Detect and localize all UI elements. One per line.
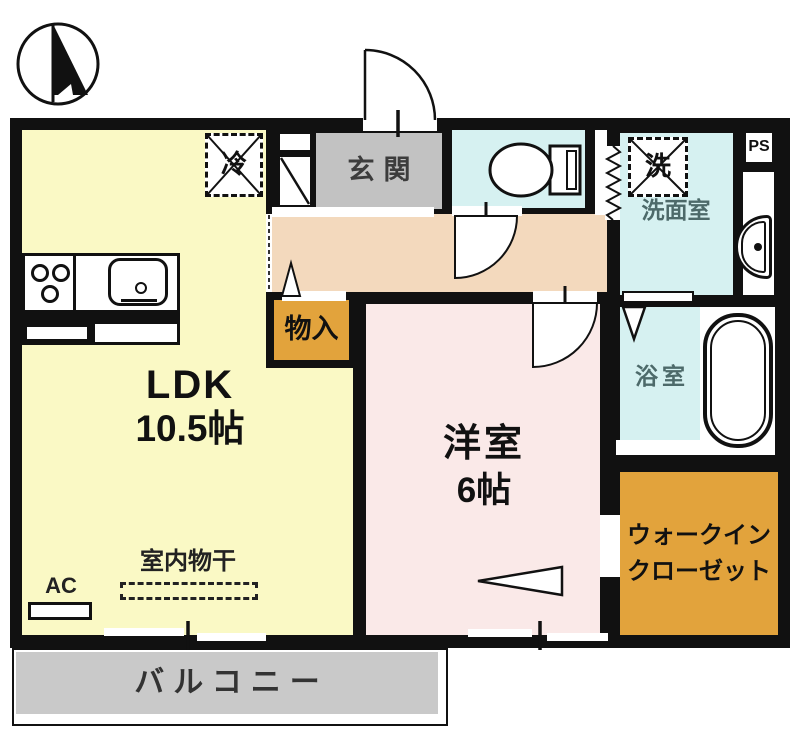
sink-drain <box>135 282 147 294</box>
storage-sliding-door <box>282 291 346 301</box>
kitchen-sink-icon <box>108 258 168 306</box>
kitchen-cabinet-slot <box>27 327 87 339</box>
wic-label-line2: クローゼット <box>627 558 771 586</box>
room-toilet <box>452 130 585 208</box>
corridor-open-boundary <box>266 214 272 292</box>
bathroom-label-text: 浴室 <box>631 363 689 389</box>
indoor-drying-label: 室内物干 <box>113 548 263 576</box>
window <box>197 633 266 641</box>
kitchen-cabinet-right <box>92 321 180 345</box>
refrigerator-box: 冷 <box>205 133 263 197</box>
bathtub-icon <box>703 313 773 448</box>
wic-door-gap <box>600 515 620 577</box>
room-entrance: 玄関 <box>316 133 442 209</box>
pipe-space-label: PS <box>748 138 769 156</box>
wic-label-line1: ウォークイン <box>627 522 771 550</box>
balcony-frame: バルコニー <box>12 648 448 726</box>
western-size: 6帖 <box>457 471 511 511</box>
north-compass-icon <box>18 24 98 104</box>
western-label-block: 洋室 6帖 <box>398 416 570 518</box>
ac-unit <box>28 602 92 620</box>
washroom-label: 洗面室 <box>616 196 736 224</box>
entrance-cabinet-top <box>278 132 312 152</box>
stove-burner <box>31 264 49 282</box>
entrance-step <box>272 207 434 217</box>
bathtub-inner <box>710 320 766 441</box>
sink-edge <box>121 299 157 302</box>
western-label: 洋室 <box>443 423 525 467</box>
shoe-cabinet <box>278 155 312 207</box>
western-doorway <box>533 291 597 303</box>
window <box>547 633 608 641</box>
ldk-label-block: LDK 10.5帖 <box>80 358 300 454</box>
room-walk-in-closet: ウォークイン クローゼット <box>620 472 778 635</box>
ldk-size: 10.5帖 <box>135 408 244 451</box>
indoor-drying-label-text: 室内物干 <box>140 548 236 576</box>
room-balcony: バルコニー <box>16 652 438 714</box>
washbasin-drain <box>754 243 762 251</box>
bathroom-label: 浴室 <box>618 362 702 390</box>
corridor <box>272 214 607 292</box>
pipe-space: PS <box>744 131 774 164</box>
stove-burner <box>41 285 59 303</box>
entrance-doorway <box>363 118 437 131</box>
window <box>104 628 184 636</box>
refrigerator-label: 冷 <box>221 150 247 180</box>
window <box>468 629 532 637</box>
storage-label: 物入 <box>285 314 339 345</box>
kitchen-base <box>22 313 180 321</box>
washer-label: 洗 <box>645 152 671 182</box>
kitchen-cabinet-left <box>22 321 92 345</box>
entrance-label: 玄関 <box>339 155 420 186</box>
room-storage: 物入 <box>274 300 349 360</box>
stove-burner <box>52 264 70 282</box>
balcony-label: バルコニー <box>125 666 328 701</box>
stove-icon <box>22 253 76 313</box>
bath-sliding-door <box>622 291 694 303</box>
ac-label-text: AC <box>45 573 77 598</box>
floor-plan: 物入 玄関 PS 洗 洗面室 浴室 ウォークイン クローゼット <box>0 0 800 748</box>
indoor-drying-pole <box>120 582 258 600</box>
ldk-label: LDK <box>146 362 234 408</box>
washroom-label-text: 洗面室 <box>642 197 711 223</box>
ac-label: AC <box>36 574 86 598</box>
toilet-doorway <box>452 206 522 216</box>
washer-box: 洗 <box>628 137 688 197</box>
